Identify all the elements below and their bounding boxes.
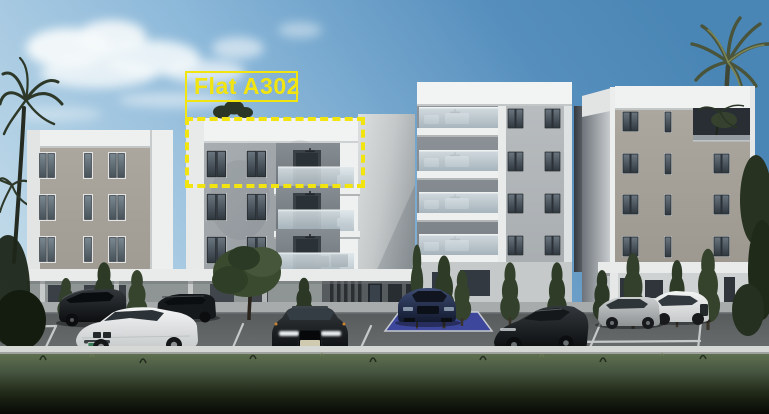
flat-highlight-box	[185, 117, 365, 188]
building-center	[417, 82, 582, 272]
architectural-render: Flat A302	[0, 0, 769, 414]
label-connector	[185, 102, 187, 117]
roof-terrace-opening	[693, 105, 750, 142]
scene	[0, 0, 769, 414]
flat-label: Flat A302	[185, 71, 298, 102]
kerb-wall	[0, 346, 769, 354]
grass-bank	[0, 354, 769, 414]
flat-label-text: Flat A302	[194, 75, 300, 98]
